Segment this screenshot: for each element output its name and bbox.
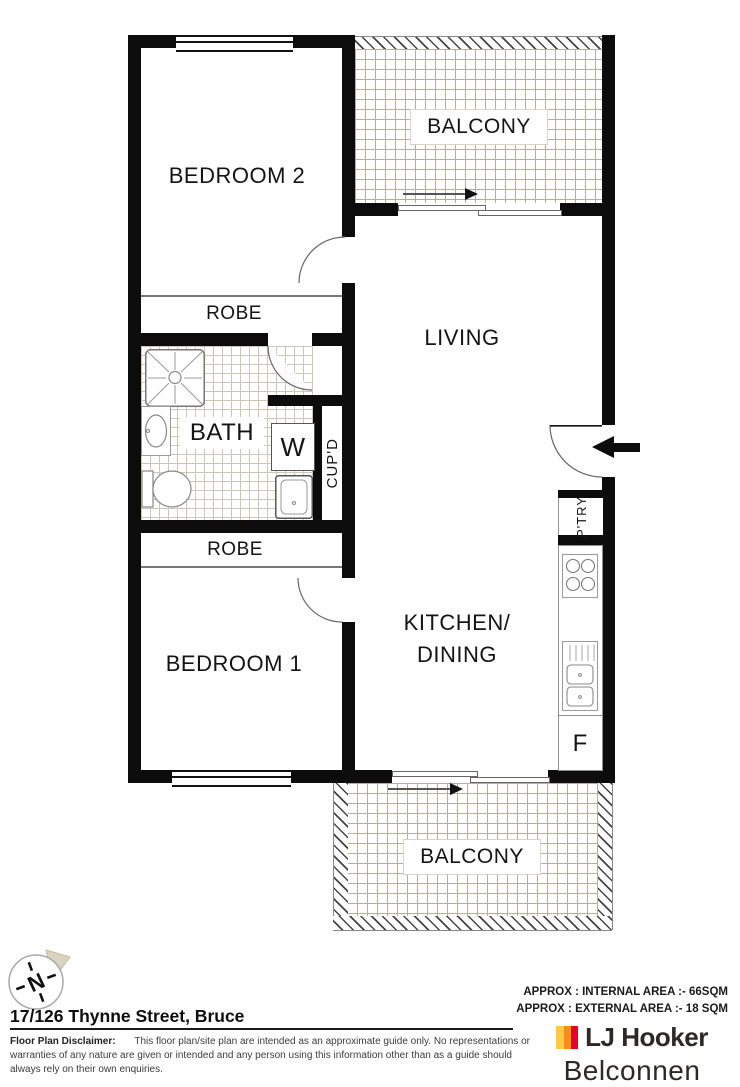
balcony-bottom-right-hatch — [598, 783, 613, 930]
cupboard: CUP'D — [322, 406, 342, 520]
area-summary: APPROX : INTERNAL AREA :- 66SQM APPROX :… — [516, 984, 728, 1018]
robe-top-label: ROBE — [206, 303, 262, 325]
washing-machine: W — [271, 423, 315, 471]
wall-bath-top-a — [128, 333, 268, 346]
ljhooker-logo: LJ Hooker Belconnen — [532, 1022, 732, 1087]
wall-laundry-h — [268, 395, 342, 406]
wall-left — [128, 35, 141, 783]
living-label: LIVING — [424, 325, 499, 351]
disclaimer-line1: This floor plan/site plan are intended a… — [134, 1036, 530, 1047]
kitchen-dining-label: KITCHEN/ DINING — [404, 607, 511, 671]
bedroom2-door-arc — [299, 237, 345, 283]
balcony-top-slide-line — [403, 193, 465, 195]
wall-living-top-b — [560, 203, 602, 216]
bath-door-arc — [268, 346, 312, 390]
fridge-label: F — [573, 730, 588, 758]
kitchen-label-line2: DINING — [404, 639, 511, 671]
wall-bottom-c — [548, 770, 615, 783]
balcony-top-slider-track2 — [478, 210, 562, 216]
shower-icon — [145, 349, 205, 407]
disclaimer-label: Floor Plan Disclaimer: — [10, 1036, 116, 1047]
balcony-top-slider-track — [398, 205, 486, 211]
brand-name: LJ Hooker — [585, 1022, 708, 1053]
balcony-bottom-slider-track2 — [470, 777, 550, 783]
kitchen-label-line1: KITCHEN/ — [404, 607, 511, 639]
robe-bottom-label: ROBE — [207, 539, 263, 561]
wall-bath-top-b — [312, 333, 355, 346]
basin-icon — [141, 406, 171, 456]
bedroom1-door-arc — [298, 578, 342, 622]
bath-label: BATH — [180, 417, 264, 449]
wall-living-top-a — [355, 203, 398, 216]
toilet-icon — [141, 468, 193, 510]
wall-divider-a — [342, 35, 355, 237]
disclaimer-line2: warranties of any nature are given or in… — [10, 1049, 550, 1063]
balcony-bottom-left-hatch — [333, 783, 348, 930]
laundry-tub-icon — [275, 475, 313, 519]
wall-top-a — [128, 35, 176, 48]
wall-bottom-b — [291, 770, 392, 783]
ljhooker-logo-mark-icon — [556, 1026, 578, 1049]
fridge-space: F — [558, 715, 602, 771]
cupboard-label: CUP'D — [324, 438, 341, 488]
bedroom2-label: BEDROOM 2 — [169, 163, 306, 189]
balcony-top-slide-arrow-icon — [465, 188, 478, 200]
wall-robe1-top — [128, 520, 355, 533]
cooktop-icon — [562, 554, 598, 598]
bedroom1-label: BEDROOM 1 — [166, 651, 303, 677]
bedroom2-window — [176, 35, 293, 52]
balcony-bottom-bottom-hatch — [333, 916, 612, 931]
pantry-label: P'TRY — [574, 496, 589, 538]
internal-area: APPROX : INTERNAL AREA :- 66SQM — [516, 984, 728, 1001]
balcony-bottom-slide-arrow-icon — [450, 783, 463, 795]
wall-divider-c — [342, 622, 355, 783]
wall-divider-b — [342, 283, 355, 578]
pantry: P'TRY — [558, 498, 603, 535]
balcony-bottom-slide-line — [388, 788, 450, 790]
wall-bottom-a — [128, 770, 172, 783]
entry-arrow-icon — [592, 436, 614, 458]
divider-rule — [10, 1028, 513, 1030]
wall-right-b — [602, 477, 615, 783]
property-address: 17/126 Thynne Street, Bruce — [10, 1006, 244, 1027]
wall-right-a — [602, 35, 615, 425]
balcony-bottom-slider-track — [392, 771, 478, 777]
bedroom1-window — [172, 770, 291, 787]
balcony-top-label: BALCONY — [410, 109, 548, 145]
balcony-bottom-label: BALCONY — [403, 839, 541, 875]
compass-icon: N — [6, 948, 70, 1014]
disclaimer-line3: always rely on their own enquiries. — [10, 1063, 550, 1077]
brand-office: Belconnen — [564, 1055, 701, 1087]
kitchen-sink-icon — [562, 641, 598, 711]
external-area: APPROX : EXTERNAL AREA :- 18 SQM — [516, 1001, 728, 1018]
floor-plan-disclaimer: Floor Plan Disclaimer: This floor plan/s… — [10, 1035, 550, 1077]
entry-arrow-tail — [614, 443, 640, 452]
robe2-line — [141, 295, 342, 297]
washer-label: W — [280, 432, 305, 463]
robe1-line — [141, 566, 342, 568]
